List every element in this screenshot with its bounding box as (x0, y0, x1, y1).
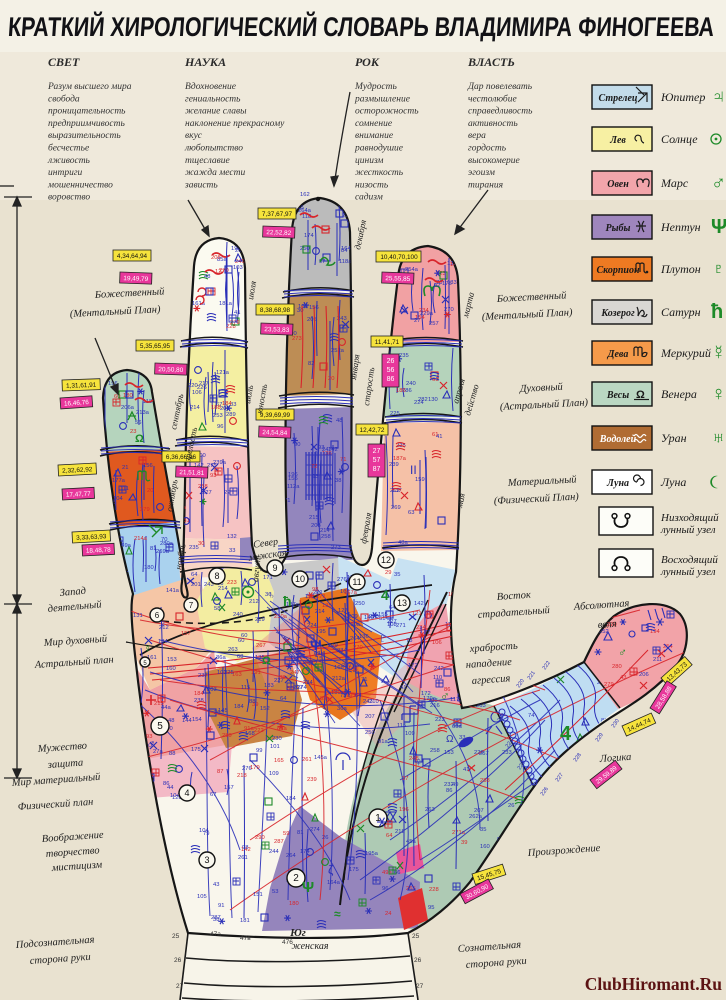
svg-text:234: 234 (303, 680, 313, 686)
svg-text:10: 10 (295, 574, 305, 584)
svg-text:Дева: Дева (607, 349, 629, 360)
svg-text:206а: 206а (121, 405, 135, 411)
svg-text:РОК: РОК (355, 55, 380, 69)
svg-text:ζ: ζ (328, 863, 334, 877)
svg-text:263: 263 (228, 647, 238, 653)
svg-text:273: 273 (292, 336, 302, 342)
svg-text:11,41,71: 11,41,71 (375, 339, 400, 346)
svg-text:93: 93 (210, 473, 216, 479)
svg-text:210: 210 (369, 699, 379, 705)
svg-text:98: 98 (242, 845, 248, 851)
svg-text:106: 106 (192, 390, 202, 396)
svg-text:218: 218 (237, 773, 247, 779)
svg-text:воровство: воровство (48, 193, 90, 203)
svg-text:82: 82 (308, 361, 314, 367)
svg-text:79: 79 (203, 831, 209, 837)
svg-text:154: 154 (192, 717, 202, 723)
svg-text:88: 88 (249, 699, 255, 705)
svg-text:67: 67 (210, 792, 216, 798)
svg-text:225: 225 (390, 411, 400, 417)
svg-text:250: 250 (365, 730, 375, 736)
svg-text:22,52,82: 22,52,82 (266, 229, 292, 237)
svg-text:223: 223 (227, 580, 237, 586)
svg-text:жажда мести: жажда мести (185, 167, 245, 178)
svg-text:47в: 47в (240, 935, 251, 942)
svg-text:157: 157 (181, 631, 191, 637)
svg-text:37: 37 (402, 776, 408, 782)
svg-text:276: 276 (337, 577, 347, 583)
svg-text:175: 175 (349, 867, 359, 873)
svg-text:66: 66 (394, 870, 400, 876)
svg-text:267: 267 (256, 643, 266, 649)
svg-text:203: 203 (207, 687, 217, 693)
svg-text:Луна: Луна (606, 478, 629, 489)
svg-text:252а: 252а (331, 348, 345, 354)
svg-text:181а: 181а (219, 301, 233, 307)
svg-text:250: 250 (355, 601, 365, 607)
svg-text:Ω: Ω (262, 655, 271, 667)
svg-text:90: 90 (294, 442, 300, 448)
svg-text:48: 48 (336, 418, 342, 424)
svg-text:♂: ♂ (618, 645, 627, 659)
svg-text:48: 48 (204, 274, 210, 280)
svg-text:41: 41 (436, 434, 442, 440)
svg-text:165: 165 (274, 758, 284, 764)
svg-text:гордость: гордость (468, 143, 507, 154)
svg-text:КРАТКИЙ ХИРОЛОГИЧЕСКИЙ СЛОВАРЬ: КРАТКИЙ ХИРОЛОГИЧЕСКИЙ СЛОВАРЬ ВЛАДИМИРА… (7, 10, 715, 42)
svg-text:60: 60 (241, 633, 247, 639)
svg-text:180: 180 (144, 565, 154, 571)
svg-text:110: 110 (433, 675, 442, 681)
svg-text:36а: 36а (216, 655, 226, 661)
svg-text:Плутон: Плутон (660, 262, 701, 276)
svg-text:279: 279 (140, 507, 150, 513)
svg-text:женская: женская (291, 941, 328, 952)
svg-text:196: 196 (399, 807, 409, 813)
svg-text:162: 162 (300, 192, 310, 198)
svg-text:45а: 45а (406, 839, 416, 845)
svg-text:тщеславие: тщеславие (185, 156, 230, 166)
svg-text:206: 206 (639, 672, 649, 678)
svg-text:35: 35 (394, 572, 400, 578)
svg-text:5: 5 (157, 721, 163, 732)
svg-text:86: 86 (387, 376, 395, 383)
svg-text:39: 39 (461, 840, 467, 846)
svg-text:гениальность: гениальность (185, 94, 241, 104)
svg-text:43: 43 (213, 882, 219, 888)
svg-text:23,53,83: 23,53,83 (264, 326, 290, 334)
svg-text:24: 24 (385, 911, 392, 917)
svg-text:240: 240 (406, 381, 416, 387)
svg-text:112а: 112а (287, 484, 300, 490)
svg-text:64: 64 (191, 572, 198, 578)
svg-text:47а: 47а (210, 931, 221, 938)
svg-text:Ψ: Ψ (302, 879, 314, 896)
svg-text:188: 188 (211, 405, 221, 411)
svg-text:172: 172 (421, 691, 431, 697)
svg-text:151: 151 (253, 892, 263, 898)
svg-text:174: 174 (300, 849, 310, 855)
svg-text:81: 81 (297, 830, 303, 836)
svg-text:29: 29 (385, 570, 391, 576)
svg-text:33: 33 (459, 735, 465, 741)
svg-text:♂: ♂ (440, 688, 450, 703)
svg-text:142: 142 (414, 601, 424, 607)
svg-text:132: 132 (227, 534, 237, 540)
svg-text:242: 242 (434, 666, 444, 672)
svg-text:263: 263 (425, 807, 435, 813)
svg-text:84: 84 (341, 248, 348, 254)
svg-text:1,31,61,91: 1,31,61,91 (66, 382, 97, 390)
svg-text:честолюбие: честолюбие (468, 93, 517, 104)
svg-text:72: 72 (311, 464, 317, 470)
svg-text:196: 196 (288, 472, 298, 478)
svg-text:мошенничество: мошенничество (47, 180, 113, 190)
svg-text:91а: 91а (244, 726, 254, 732)
svg-text:30: 30 (198, 541, 204, 547)
svg-text:212: 212 (249, 599, 259, 605)
svg-text:57: 57 (373, 457, 381, 464)
svg-text:17,47,77: 17,47,77 (66, 490, 92, 498)
svg-text:4: 4 (381, 587, 389, 603)
svg-text:159: 159 (415, 477, 425, 483)
svg-text:12,42,72: 12,42,72 (360, 427, 385, 434)
svg-text:9,39,69,99: 9,39,69,99 (260, 412, 291, 419)
svg-text:69а: 69а (452, 724, 462, 730)
svg-text:87: 87 (217, 769, 223, 775)
svg-text:207: 207 (365, 714, 375, 720)
svg-text:91: 91 (218, 903, 224, 909)
svg-text:Меркурий: Меркурий (660, 346, 711, 360)
svg-text:25: 25 (172, 933, 180, 940)
svg-text:59: 59 (283, 831, 289, 837)
svg-text:127: 127 (338, 608, 348, 614)
svg-text:228: 228 (429, 887, 439, 893)
svg-text:Лев: Лев (609, 135, 626, 146)
svg-text:Разум высшего мира: Разум высшего мира (47, 82, 132, 92)
svg-text:♂: ♂ (146, 736, 156, 751)
svg-text:Мудрость: Мудрость (354, 81, 397, 92)
svg-text:4,34,64,94: 4,34,64,94 (117, 253, 148, 260)
svg-text:219: 219 (255, 617, 265, 623)
svg-text:Стрелец: Стрелец (599, 93, 638, 104)
svg-text:88: 88 (169, 751, 175, 757)
svg-text:269а: 269а (156, 549, 170, 555)
svg-text:175: 175 (191, 747, 201, 753)
svg-text:18,48,78: 18,48,78 (86, 546, 112, 554)
svg-text:258: 258 (430, 748, 440, 754)
svg-text:104: 104 (113, 496, 123, 502)
svg-text:211: 211 (653, 657, 662, 663)
svg-text:♅: ♅ (711, 427, 726, 449)
svg-text:♇: ♇ (378, 631, 387, 645)
svg-text:свобода: свобода (48, 93, 80, 104)
svg-text:НАУКА: НАУКА (184, 55, 226, 69)
svg-text:20: 20 (147, 488, 153, 494)
svg-text:♀: ♀ (158, 617, 167, 631)
svg-text:273: 273 (331, 545, 341, 551)
svg-text:Скорпион: Скорпион (596, 265, 639, 276)
svg-text:220: 220 (188, 383, 198, 389)
svg-text:11: 11 (352, 577, 361, 587)
svg-text:184: 184 (158, 639, 168, 645)
svg-text:20: 20 (328, 376, 334, 382)
svg-text:258: 258 (321, 534, 331, 540)
svg-text:215: 215 (309, 515, 319, 521)
svg-text:163: 163 (232, 672, 242, 678)
svg-text:235: 235 (189, 545, 199, 551)
svg-text:любопытство: любопытство (184, 143, 243, 154)
svg-text:тирания: тирания (468, 180, 503, 190)
svg-text:Марс: Марс (660, 176, 689, 190)
svg-text:8: 8 (214, 571, 219, 581)
svg-text:151: 151 (316, 656, 326, 662)
svg-text:♀: ♀ (414, 755, 423, 769)
svg-text:20,50,80: 20,50,80 (158, 366, 184, 374)
svg-text:Луна: Луна (660, 475, 686, 489)
svg-text:3: 3 (204, 855, 209, 865)
svg-text:261: 261 (238, 855, 248, 861)
svg-text:177а: 177а (112, 478, 126, 484)
svg-text:лживость: лживость (47, 156, 91, 166)
svg-text:145: 145 (218, 708, 228, 714)
svg-text:35: 35 (480, 827, 486, 833)
svg-text:68: 68 (237, 654, 243, 660)
svg-text:103: 103 (233, 265, 243, 271)
svg-text:ClubHiromant.Ru: ClubHiromant.Ru (585, 974, 723, 994)
svg-text:141а: 141а (166, 588, 180, 594)
svg-text:7: 7 (189, 601, 194, 610)
svg-text:274: 274 (310, 827, 320, 833)
svg-text:5,35,65,95: 5,35,65,95 (140, 343, 171, 350)
svg-text:238: 238 (194, 698, 204, 704)
svg-text:253: 253 (213, 413, 223, 419)
svg-text:178: 178 (442, 281, 452, 287)
svg-text:184: 184 (234, 704, 244, 710)
svg-text:Дар повелевать: Дар повелевать (467, 82, 533, 92)
svg-text:214: 214 (190, 405, 200, 411)
svg-text:208: 208 (211, 255, 221, 261)
svg-text:111: 111 (120, 486, 129, 492)
svg-text:II: II (410, 463, 417, 477)
svg-text:10,40,70,100: 10,40,70,100 (380, 254, 418, 261)
svg-text:239: 239 (389, 462, 399, 468)
svg-text:12: 12 (381, 555, 391, 565)
svg-text:48а: 48а (398, 540, 408, 546)
svg-text:8,38,68,98: 8,38,68,98 (260, 307, 291, 314)
svg-text:118а: 118а (339, 259, 352, 265)
svg-text:247: 247 (290, 670, 300, 676)
svg-text:21: 21 (122, 465, 128, 471)
svg-text:22: 22 (224, 490, 230, 496)
svg-text:19,49,79: 19,49,79 (123, 275, 149, 283)
svg-text:36а: 36а (337, 706, 347, 712)
svg-text:217: 217 (199, 381, 209, 387)
svg-text:232: 232 (444, 782, 454, 788)
svg-text:Юпитер: Юпитер (660, 90, 705, 104)
svg-text:Вдохновение: Вдохновение (185, 81, 236, 92)
svg-text:261: 261 (302, 757, 312, 763)
svg-text:214а: 214а (134, 536, 148, 542)
svg-text:153: 153 (167, 657, 177, 663)
svg-text:99: 99 (256, 748, 262, 754)
svg-text:Ψ: Ψ (711, 216, 726, 238)
svg-text:234: 234 (337, 648, 347, 654)
svg-text:91а: 91а (378, 739, 388, 745)
svg-text:184: 184 (194, 691, 204, 697)
svg-text:Весы: Весы (606, 390, 629, 401)
svg-text:наклонение прекрасному: наклонение прекрасному (185, 119, 285, 129)
svg-text:42: 42 (434, 283, 440, 289)
svg-text:26: 26 (387, 358, 395, 365)
svg-text:53: 53 (272, 889, 278, 895)
svg-text:183: 183 (264, 683, 274, 689)
svg-text:195а: 195а (365, 851, 379, 857)
svg-text:95: 95 (428, 905, 434, 911)
svg-text:224: 224 (307, 623, 317, 629)
svg-text:Водолей: Водолей (599, 434, 637, 445)
svg-text:264: 264 (350, 636, 360, 642)
svg-text:Солнце: Солнце (661, 132, 698, 146)
svg-text:справедливость: справедливость (468, 106, 533, 117)
svg-text:98: 98 (312, 587, 318, 593)
svg-text:26: 26 (322, 835, 328, 841)
svg-text:Логика: Логика (598, 752, 631, 765)
svg-text:Рыбы: Рыбы (606, 223, 631, 234)
svg-text:146: 146 (364, 615, 374, 621)
svg-text:109: 109 (269, 771, 279, 777)
svg-text:250: 250 (300, 246, 310, 252)
svg-text:179: 179 (250, 765, 260, 771)
svg-text:212а: 212а (332, 676, 346, 682)
svg-text:☿: ☿ (144, 644, 152, 655)
svg-text:213а: 213а (136, 410, 150, 416)
svg-text:244: 244 (269, 849, 279, 855)
svg-text:26: 26 (414, 957, 422, 964)
svg-text:78: 78 (406, 638, 412, 644)
svg-text:размышление: размышление (354, 94, 410, 104)
svg-text:87: 87 (373, 466, 381, 473)
svg-text:174: 174 (304, 233, 314, 239)
svg-text:254а: 254а (405, 267, 419, 273)
svg-text:лунный узел: лунный узел (660, 566, 716, 578)
svg-text:229: 229 (474, 750, 484, 756)
svg-text:27: 27 (373, 448, 381, 455)
svg-text:ħ: ħ (711, 301, 723, 323)
svg-text:181: 181 (240, 918, 250, 924)
svg-text:25: 25 (412, 933, 420, 940)
svg-text:476: 476 (282, 939, 293, 946)
svg-text:223: 223 (435, 717, 445, 723)
svg-text:бесчестье: бесчестье (48, 143, 89, 154)
svg-text:25,55,85: 25,55,85 (385, 275, 411, 283)
svg-text:203: 203 (428, 698, 438, 704)
svg-text:Нептун: Нептун (660, 220, 701, 234)
svg-text:желание славы: желание славы (185, 107, 247, 117)
svg-text:233: 233 (502, 750, 512, 756)
svg-text:21,51,81: 21,51,81 (179, 469, 205, 477)
svg-text:7,37,67,97: 7,37,67,97 (262, 211, 293, 218)
svg-text:96: 96 (217, 424, 223, 430)
svg-text:зависть: зависть (184, 180, 218, 190)
svg-text:жесткость: жесткость (355, 168, 404, 178)
svg-text:218: 218 (395, 829, 405, 835)
svg-text:264: 264 (286, 853, 296, 859)
svg-text:27: 27 (416, 983, 424, 990)
svg-text:♄: ♄ (268, 590, 276, 601)
svg-text:лунный узел: лунный узел (660, 524, 716, 536)
svg-text:4: 4 (184, 788, 189, 798)
svg-text:288: 288 (480, 778, 490, 784)
svg-text:109: 109 (405, 731, 415, 737)
svg-text:Козерог: Козерог (600, 308, 635, 319)
svg-text:♃: ♃ (711, 86, 726, 108)
svg-text:171: 171 (263, 575, 273, 581)
svg-text:280: 280 (612, 664, 622, 670)
svg-text:74: 74 (528, 713, 535, 719)
svg-text:287: 287 (274, 839, 284, 845)
svg-text:сомнение: сомнение (355, 119, 392, 129)
svg-text:106: 106 (432, 640, 442, 646)
svg-text:289: 289 (226, 412, 236, 418)
svg-text:271: 271 (396, 623, 406, 629)
svg-text:вера: вера (468, 131, 486, 141)
svg-text:проницательность: проницательность (48, 107, 126, 117)
svg-text:Ω: Ω (135, 433, 144, 445)
svg-text:86: 86 (446, 788, 452, 794)
svg-text:33: 33 (229, 548, 235, 554)
svg-text:230: 230 (272, 736, 282, 742)
svg-text:38: 38 (213, 917, 219, 923)
svg-text:Сатурн: Сатурн (661, 305, 701, 319)
svg-text:63: 63 (408, 510, 414, 516)
svg-text:205: 205 (307, 317, 317, 323)
svg-text:81: 81 (150, 546, 156, 552)
svg-text:41: 41 (400, 685, 406, 691)
svg-text:152: 152 (260, 706, 270, 712)
svg-text:2: 2 (293, 873, 299, 884)
svg-text:237: 237 (198, 673, 208, 679)
svg-text:27: 27 (176, 983, 184, 990)
svg-text:ВЛАСТЬ: ВЛАСТЬ (467, 55, 515, 69)
svg-text:≈: ≈ (334, 907, 341, 921)
svg-text:115: 115 (241, 685, 250, 691)
svg-text:96: 96 (382, 886, 388, 892)
svg-text:265: 265 (303, 660, 313, 666)
svg-text:208: 208 (311, 523, 321, 529)
svg-text:207: 207 (293, 685, 303, 691)
svg-text:ħ: ħ (283, 593, 292, 609)
svg-text:Юг: Юг (289, 927, 306, 939)
svg-text:цинизм: цинизм (355, 156, 384, 166)
svg-text:160: 160 (480, 844, 490, 850)
svg-text:Восходящий: Восходящий (661, 554, 718, 566)
svg-text:130: 130 (428, 397, 438, 403)
svg-text:низость: низость (355, 180, 389, 190)
svg-text:240: 240 (233, 612, 243, 618)
svg-text:180: 180 (289, 901, 299, 907)
svg-text:активность: активность (468, 119, 518, 129)
svg-text:290: 290 (255, 835, 265, 841)
svg-text:Ω: Ω (446, 734, 454, 745)
svg-text:вкус: вкус (185, 131, 203, 141)
svg-text:234: 234 (419, 308, 429, 314)
svg-text:167а: 167а (344, 590, 358, 596)
svg-text:224: 224 (414, 400, 424, 406)
svg-text:садизм: садизм (355, 192, 383, 203)
svg-text:СВЕТ: СВЕТ (48, 55, 80, 69)
svg-text:24,54,84: 24,54,84 (262, 429, 288, 437)
